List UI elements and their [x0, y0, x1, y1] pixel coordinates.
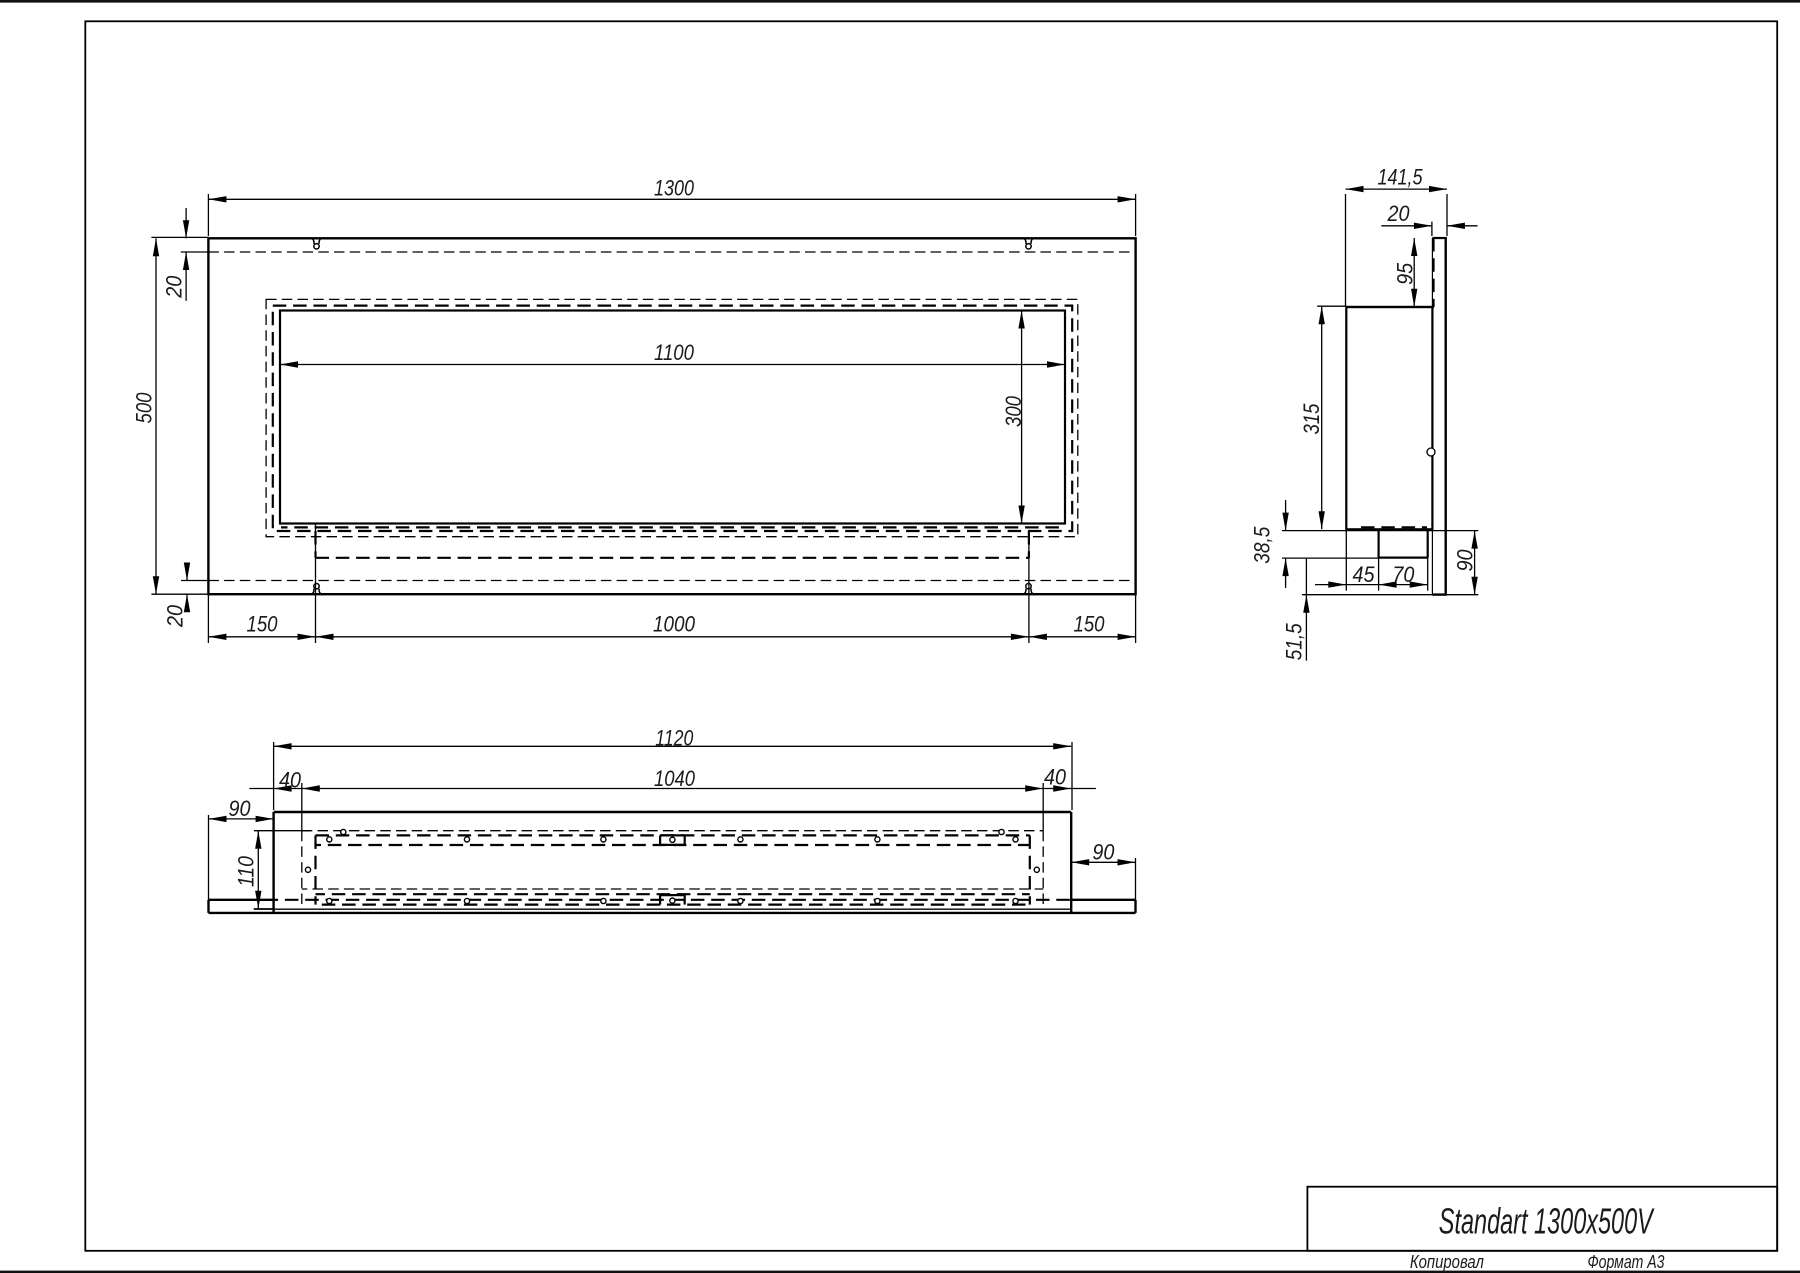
- svg-text:40: 40: [279, 768, 301, 793]
- svg-text:315: 315: [1299, 403, 1324, 434]
- svg-text:20: 20: [1387, 201, 1410, 226]
- svg-text:Копировал: Копировал: [1410, 1251, 1484, 1272]
- svg-text:95: 95: [1392, 262, 1417, 284]
- svg-text:90: 90: [1092, 840, 1114, 865]
- svg-text:20: 20: [162, 275, 187, 298]
- svg-text:300: 300: [1001, 396, 1026, 427]
- svg-text:141,5: 141,5: [1378, 165, 1423, 190]
- svg-text:20: 20: [163, 605, 188, 628]
- svg-text:1100: 1100: [654, 340, 694, 365]
- svg-text:51,5: 51,5: [1282, 623, 1307, 660]
- svg-text:1040: 1040: [654, 766, 695, 791]
- svg-text:40: 40: [1044, 765, 1066, 790]
- svg-text:38,5: 38,5: [1250, 526, 1275, 563]
- svg-text:1300: 1300: [654, 176, 694, 201]
- svg-text:150: 150: [247, 612, 278, 637]
- svg-text:45: 45: [1353, 562, 1375, 587]
- svg-text:Standart 1300x500V: Standart 1300x500V: [1439, 1200, 1655, 1241]
- svg-text:70: 70: [1392, 562, 1414, 587]
- svg-text:1120: 1120: [655, 726, 693, 751]
- svg-text:500: 500: [132, 392, 157, 423]
- svg-text:1000: 1000: [653, 612, 695, 637]
- svg-text:150: 150: [1074, 612, 1105, 637]
- svg-text:90: 90: [1453, 549, 1478, 571]
- svg-text:90: 90: [229, 796, 251, 821]
- svg-text:Формат А3: Формат А3: [1588, 1251, 1666, 1272]
- svg-text:110: 110: [234, 856, 259, 887]
